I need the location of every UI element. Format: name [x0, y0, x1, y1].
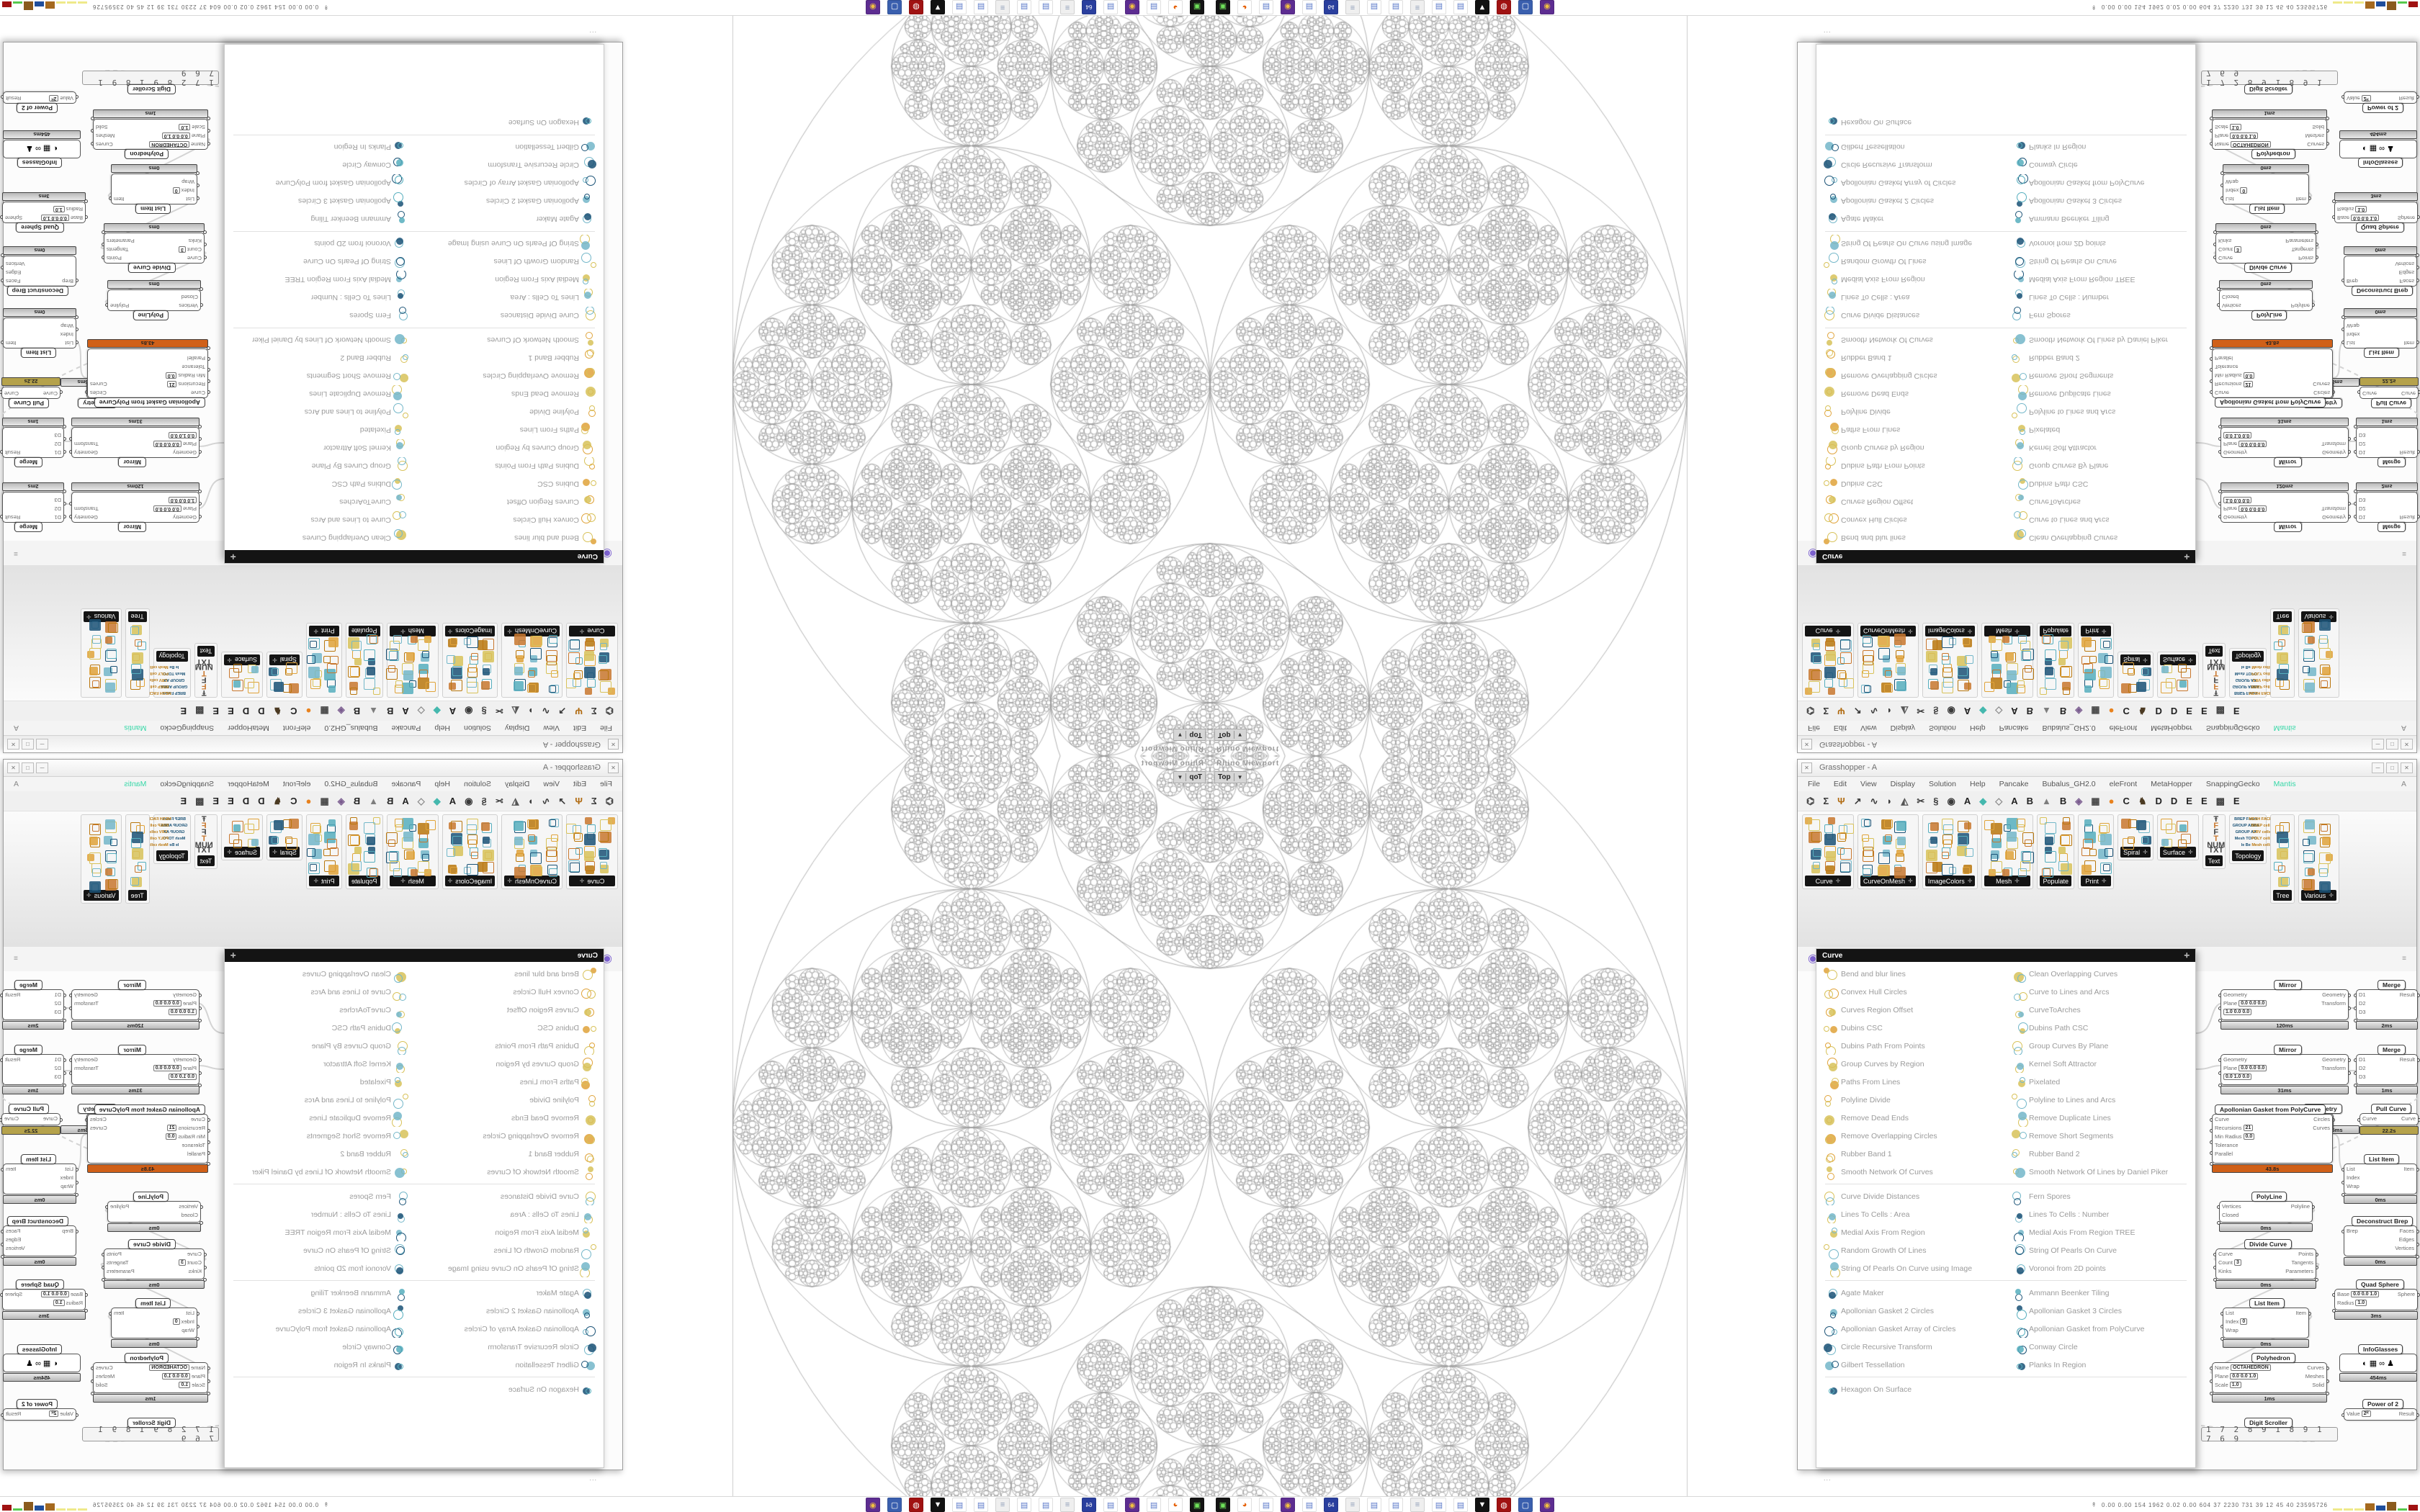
menu-item[interactable]: Rubber Band 1: [414, 1145, 602, 1163]
menu-item[interactable]: Voronoi from 2D points: [2006, 235, 2194, 253]
node-input[interactable]: Plane0.0 0.0 1.0: [162, 133, 205, 140]
taskbar-app-icon-14[interactable]: ▢: [1518, 1498, 1533, 1512]
taskbar-app-icon-13[interactable]: ◍: [909, 1498, 923, 1512]
pin-icon[interactable]: ✛: [2184, 952, 2190, 960]
menu-item[interactable]: Remove Duplicate Lines: [226, 1109, 414, 1127]
menu-item[interactable]: Apollonian Gasket Array of Circles: [1818, 1320, 2006, 1338]
taskbar-app-icon-9[interactable]: ≡: [1410, 0, 1425, 14]
menu-item[interactable]: Fern Spores: [226, 1187, 414, 1205]
taskbar-app-icon-12[interactable]: ▼: [931, 1498, 945, 1512]
node-input[interactable]: Vertices: [179, 1203, 198, 1210]
node-label-chip[interactable]: PolyLine: [133, 310, 169, 320]
gh-node[interactable]: ListItemIndex0Wrap: [111, 1308, 197, 1338]
node-output[interactable]: Polyline: [110, 1203, 129, 1210]
menu-item[interactable]: Lines To Cells : Number: [226, 1205, 414, 1223]
menu-item[interactable]: Remove Dead Ends: [414, 1109, 602, 1127]
node-input[interactable]: Curve: [191, 390, 205, 397]
menu-item[interactable]: Group Curves By Plane: [2006, 1037, 2194, 1055]
menu-item[interactable]: Gilbert Tessellation: [414, 1356, 602, 1374]
node-value-box[interactable]: 0.0 0.0 0.0: [2238, 506, 2267, 513]
node-label-chip[interactable]: Apollonian Gasket from PolyCurve: [94, 397, 205, 408]
taskbar-app-icon-10[interactable]: ▤: [1432, 1498, 1446, 1512]
menu-item[interactable]: Curves Region Offset: [414, 493, 602, 511]
menu-item[interactable]: Pixelated: [226, 421, 414, 439]
menu-item[interactable]: Paths From Lines: [1818, 1073, 2006, 1091]
node-output[interactable]: Faces: [2400, 1228, 2414, 1234]
node-input[interactable]: Curve: [2215, 390, 2229, 397]
menu-item[interactable]: Polyline to Lines and Arcs: [226, 1091, 414, 1109]
node-input[interactable]: Index0: [2226, 188, 2247, 194]
node-output[interactable]: Geometry: [2322, 515, 2346, 521]
gh-node[interactable]: GeometryGeometryPlane0.0 0.0 0.0Transfor…: [2220, 989, 2349, 1020]
menu-item[interactable]: Polyline Divide: [414, 403, 602, 421]
node-input[interactable]: Index: [2347, 1174, 2359, 1181]
node-value-box[interactable]: 2ᴿ: [2362, 96, 2371, 102]
node-output[interactable]: Result: [2399, 1410, 2414, 1417]
node-output[interactable]: Sphere: [2398, 1291, 2415, 1297]
node-input[interactable]: D2: [2359, 506, 2366, 513]
node-input[interactable]: Tolerance: [181, 364, 205, 371]
node-output[interactable]: Curves: [2313, 382, 2330, 388]
taskbar-app-icon-4[interactable]: ▤: [1103, 0, 1118, 14]
menu-item[interactable]: Polyline Divide: [414, 1091, 602, 1109]
menu-item[interactable]: Lines To Cells : Area: [414, 1205, 602, 1223]
node-value-box[interactable]: 0.0 1.0 0.0: [169, 433, 197, 439]
node-input[interactable]: Index: [60, 332, 73, 338]
menu-item[interactable]: String Of Pearls On Curve: [2006, 253, 2194, 271]
taskbar-app-icon-14[interactable]: ▢: [1518, 0, 1533, 14]
node-output[interactable]: Sphere: [2398, 215, 2415, 222]
node-input[interactable]: Index0: [173, 188, 194, 194]
node-value-box[interactable]: 1.0: [179, 125, 191, 131]
node-label-chip[interactable]: Polyhedron: [2251, 1353, 2295, 1363]
gh-node[interactable]: GeometryGeometryPlane0.0 0.0 0.0Transfor…: [71, 989, 200, 1020]
menu-item[interactable]: Kernel Soft Attractor: [226, 439, 414, 457]
menu-item[interactable]: Remove Overlapping Circles: [1818, 1127, 2006, 1145]
menu-item[interactable]: Dubins CSC: [414, 475, 602, 493]
node-output[interactable]: Curves: [2313, 1125, 2330, 1131]
node-input[interactable]: Curve: [43, 391, 58, 397]
node-input[interactable]: List: [2226, 1310, 2234, 1316]
node-input[interactable]: Brep: [62, 279, 73, 285]
pin-icon[interactable]: ✛: [2184, 553, 2190, 561]
gh-node[interactable]: ListItemIndexWrap: [2344, 318, 2417, 348]
node-input[interactable]: Brep: [2347, 1228, 2358, 1234]
taskbar-app-icon-11[interactable]: ▤: [1453, 0, 1468, 14]
menu-item[interactable]: Kernel Soft Attractor: [2006, 1055, 2194, 1073]
node-output[interactable]: Vertices: [6, 261, 25, 268]
node-output[interactable]: Curves: [96, 142, 113, 148]
node-value-box[interactable]: 0.0 1.0 0.0: [2223, 1074, 2251, 1080]
menu-item[interactable]: Fern Spores: [226, 307, 414, 325]
node-output[interactable]: Geometry: [2322, 450, 2346, 456]
node-input[interactable]: Wrap: [60, 323, 73, 330]
node-value-box[interactable]: 3: [179, 247, 186, 253]
menu-item[interactable]: Conway Circle: [2006, 156, 2194, 174]
node-label-chip[interactable]: InfoGlasses: [17, 158, 62, 168]
node-label-chip[interactable]: List Item: [2364, 348, 2399, 358]
menu-item[interactable]: CurveToArches: [2006, 493, 2194, 511]
node-output[interactable]: Polyline: [2291, 1203, 2310, 1210]
menu-item[interactable]: Random Growth Of Lines: [414, 253, 602, 271]
taskbar-app-icon-7[interactable]: ▤: [1367, 1498, 1381, 1512]
node-label-chip[interactable]: Merge: [14, 457, 42, 467]
gh-node[interactable]: Base0.0 0.0 1.0SphereRadius1.0: [2, 1289, 86, 1310]
menu-item[interactable]: Remove Dead Ends: [1818, 385, 2006, 403]
node-output[interactable]: Tangents: [107, 247, 128, 253]
menu-item[interactable]: Apollonian Gasket from PolyCurve: [2006, 1320, 2194, 1338]
node-output[interactable]: Geometry: [74, 450, 98, 456]
node-output[interactable]: Transform: [74, 506, 99, 513]
node-value-box[interactable]: 0: [2240, 1318, 2247, 1325]
node-input[interactable]: Geometry: [2223, 450, 2247, 456]
taskbar-app-icon-3[interactable]: ◉: [1125, 0, 1139, 14]
node-output[interactable]: Edges: [2399, 1236, 2414, 1243]
gh-node[interactable]: ListItemIndex0Wrap: [2223, 1308, 2309, 1338]
menu-item[interactable]: CurveToArches: [226, 493, 414, 511]
menu-item[interactable]: Bend and blur lines: [414, 529, 602, 547]
node-output[interactable]: Tangents: [2292, 247, 2313, 253]
node-input[interactable]: Curve: [2215, 1116, 2229, 1122]
node-input[interactable]: Curve: [187, 1251, 202, 1257]
node-value-box[interactable]: 1.0: [2230, 1382, 2241, 1388]
node-label-chip[interactable]: Mirror: [118, 980, 146, 990]
node-label-chip[interactable]: Polyhedron: [125, 149, 169, 159]
node-value-box[interactable]: 1.0: [179, 1382, 191, 1388]
menu-item[interactable]: Rubber Band 2: [2006, 349, 2194, 367]
node-output[interactable]: Curves: [90, 382, 107, 388]
taskbar-app-icon-6[interactable]: ≡: [1060, 0, 1075, 14]
node-output[interactable]: Result: [2400, 450, 2415, 456]
menu-item[interactable]: Convex Hull Circles: [414, 983, 602, 1001]
menu-item[interactable]: Medial Axis From Region: [1818, 271, 2006, 289]
taskbar-app-icon-11[interactable]: ▤: [1453, 1498, 1468, 1512]
node-input[interactable]: Wrap: [60, 1183, 73, 1189]
menu-item[interactable]: Medial Axis From Region TREE: [226, 271, 414, 289]
rhino-viewport[interactable]: Rhino Viewport Top ▼: [1210, 16, 1688, 756]
node-output[interactable]: Circles: [90, 390, 107, 397]
menu-item[interactable]: Paths From Lines: [414, 1073, 602, 1091]
menu-item[interactable]: Ammann Beenker Tiling: [2006, 210, 2194, 228]
node-output[interactable]: Curve: [2401, 1115, 2416, 1122]
node-input[interactable]: Geometry: [173, 515, 197, 521]
taskbar-app-icon-6[interactable]: ≡: [1345, 1498, 1360, 1512]
menu-item[interactable]: Polyline Divide: [1818, 1091, 2006, 1109]
menu-item[interactable]: Apollonian Gasket 2 Circles: [414, 192, 602, 210]
taskbar-app-icon-1[interactable]: ◕: [1168, 1498, 1183, 1512]
rhino-viewport[interactable]: Rhino Viewport Top ▼: [732, 756, 1210, 1496]
node-label-chip[interactable]: Merge: [2378, 522, 2406, 532]
node-output[interactable]: Solid: [2312, 125, 2324, 131]
menu-item[interactable]: Lines To Cells : Area: [414, 289, 602, 307]
node-label-chip[interactable]: Pull Curve: [2371, 398, 2411, 408]
node-input[interactable]: NameOCTAHEDRON: [2215, 142, 2271, 148]
node-input[interactable]: List: [186, 197, 194, 203]
menu-item[interactable]: Conway Circle: [2006, 1338, 2194, 1356]
node-input[interactable]: Geometry: [173, 1056, 197, 1063]
node-value-box[interactable]: 0.0 1.0 0.0: [169, 1074, 197, 1080]
node-output[interactable]: Edges: [6, 270, 21, 276]
node-label-chip[interactable]: Divide Curve: [128, 1239, 176, 1249]
gh-node[interactable]: CurveCirclesRecursions21CurvesMin Radius…: [2212, 348, 2333, 398]
node-input[interactable]: Wrap: [181, 179, 194, 186]
node-label-chip[interactable]: Merge: [2378, 1045, 2406, 1055]
menu-item[interactable]: Apollonian Gasket 3 Circles: [2006, 192, 2194, 210]
taskbar-app-icon-6[interactable]: ≡: [1345, 0, 1360, 14]
menu-item[interactable]: String Of Pearls On Curve: [226, 1241, 414, 1259]
menu-item[interactable]: Planks In Region: [2006, 1356, 2194, 1374]
menu-item[interactable]: Lines To Cells : Number: [2006, 289, 2194, 307]
node-label-chip[interactable]: Power of 2: [17, 1399, 58, 1409]
node-input[interactable]: Kinks: [189, 1268, 202, 1274]
menu-item[interactable]: Ammann Beenker Tiling: [2006, 1284, 2194, 1302]
gh-node[interactable]: CurveCurve: [2359, 1113, 2419, 1125]
node-label-chip[interactable]: Mirror: [2274, 457, 2302, 467]
node-input[interactable]: Wrap: [181, 1327, 194, 1333]
node-label-chip[interactable]: Mirror: [118, 522, 146, 532]
menu-item[interactable]: Remove Short Segments: [226, 1127, 414, 1145]
node-input[interactable]: D1: [2359, 1056, 2366, 1063]
menu-item[interactable]: Agate Maker: [414, 210, 602, 228]
node-output[interactable]: Points: [2298, 256, 2313, 262]
node-output[interactable]: Faces: [6, 279, 20, 285]
node-input[interactable]: Geometry: [173, 450, 197, 456]
node-label-chip[interactable]: Mirror: [118, 457, 146, 467]
menu-item[interactable]: Dubins Path CSC: [226, 1019, 414, 1037]
node-value-box[interactable]: 21: [2244, 382, 2254, 388]
menu-item[interactable]: Polyline to Lines and Arcs: [226, 403, 414, 421]
menu-item[interactable]: Curve Divide Distances: [1818, 1187, 2006, 1205]
node-output[interactable]: Meshes: [2305, 133, 2324, 140]
node-output[interactable]: Meshes: [96, 1373, 115, 1380]
node-label-chip[interactable]: PolyLine: [2251, 310, 2287, 320]
viewport-top-tab[interactable]: Top ▼: [1214, 729, 1247, 741]
menu-item[interactable]: Planks In Region: [2006, 138, 2194, 156]
node-output[interactable]: Item: [114, 197, 125, 203]
gh-node[interactable]: CurveCurve: [1, 387, 60, 399]
menu-item[interactable]: Smooth Network Of Curves: [414, 1163, 602, 1181]
node-value-box[interactable]: 1.0 0.0 0.0: [2223, 498, 2251, 504]
node-label-chip[interactable]: Mirror: [118, 1045, 146, 1055]
node-input[interactable]: Curve: [187, 256, 202, 262]
node-value-box[interactable]: 21: [167, 1125, 177, 1131]
node-input[interactable]: Geometry: [2223, 991, 2247, 998]
node-value-box[interactable]: 21: [2244, 1125, 2254, 1131]
node-input[interactable]: 1.0 0.0 0.0: [169, 1009, 197, 1015]
node-label-chip[interactable]: Divide Curve: [2244, 1239, 2292, 1249]
menu-item[interactable]: Paths From Lines: [1818, 421, 2006, 439]
menu-item[interactable]: Ammann Beenker Tiling: [226, 1284, 414, 1302]
category-menu-header[interactable]: Curve ✛: [1816, 550, 2195, 563]
taskbar-app-icon-2[interactable]: ▤: [1259, 1498, 1273, 1512]
node-input[interactable]: Curve: [2362, 391, 2377, 397]
menu-item[interactable]: Rubber Band 2: [226, 349, 414, 367]
node-input[interactable]: 0.0 1.0 0.0: [169, 433, 197, 439]
node-value-box[interactable]: 1.0 0.0 0.0: [169, 1009, 197, 1015]
gh-node[interactable]: ◐ ▦ ∞ ♟: [2339, 1354, 2417, 1372]
taskbar-app-icon-8[interactable]: ▤: [1389, 0, 1403, 14]
node-value-box[interactable]: 2ᴿ: [2362, 1410, 2371, 1417]
node-input[interactable]: Radius1.0: [53, 207, 83, 213]
gh-node[interactable]: VerticesPolylineClosed: [107, 289, 201, 311]
node-value-box[interactable]: 0.0 1.0 0.0: [2223, 433, 2251, 439]
node-label-chip[interactable]: Divide Curve: [2244, 263, 2292, 273]
node-input[interactable]: D1: [54, 515, 61, 521]
node-value-box[interactable]: 0.0 0.0 1.0: [41, 1291, 69, 1297]
taskbar-app-icon-12[interactable]: ▼: [931, 0, 945, 14]
taskbar-app-icon-13[interactable]: ◍: [909, 0, 923, 14]
menu-item[interactable]: Circle Recursive Transform: [1818, 1338, 2006, 1356]
node-input[interactable]: Value2ᴿ: [2347, 96, 2371, 102]
node-input[interactable]: Kinks: [2218, 238, 2231, 245]
menu-item[interactable]: Paths From Lines: [414, 421, 602, 439]
node-label-chip[interactable]: Power of 2: [17, 103, 58, 113]
node-output[interactable]: Vertices: [2395, 1245, 2414, 1251]
menu-item[interactable]: Hexagon On Surface: [1818, 114, 2006, 132]
node-label-chip[interactable]: Quad Sphere: [16, 222, 64, 233]
gh-node[interactable]: GeometryGeometryPlane0.0 0.0 0.0Transfor…: [71, 1054, 200, 1085]
menu-item[interactable]: Hexagon On Surface: [414, 1380, 602, 1398]
menu-item[interactable]: Polyline Divide: [1818, 403, 2006, 421]
node-value-box[interactable]: 0.0 0.0 1.0: [2351, 1291, 2379, 1297]
menu-item[interactable]: Remove Duplicate Lines: [2006, 1109, 2194, 1127]
taskbar-app-icon-8[interactable]: ▤: [1017, 1498, 1031, 1512]
menu-item[interactable]: Planks In Region: [226, 1356, 414, 1374]
menu-item[interactable]: Medial Axis From Region TREE: [2006, 271, 2194, 289]
viewport-top-tab[interactable]: Top ▼: [1173, 771, 1206, 783]
node-output[interactable]: Vertices: [6, 1245, 25, 1251]
gh-node[interactable]: CurvePointsCount3TangentsKinksParameters: [104, 233, 205, 264]
node-value-box[interactable]: 0.0 0.0 1.0: [162, 1373, 190, 1380]
gh-node[interactable]: ◐ ▦ ∞ ♟: [2339, 140, 2417, 158]
node-output[interactable]: Parameters: [2285, 238, 2313, 245]
menu-item[interactable]: Random Growth Of Lines: [1818, 253, 2006, 271]
taskbar-app-icon-0[interactable]: ▣: [1216, 1498, 1230, 1512]
gh-node[interactable]: D1ResultD2D3: [2, 1054, 64, 1085]
menu-item[interactable]: Smooth Network Of Lines by Daniel Piker: [226, 331, 414, 349]
node-input[interactable]: Radius1.0: [2337, 207, 2367, 213]
menu-item[interactable]: Smooth Network Of Curves: [414, 331, 602, 349]
menu-item[interactable]: Rubber Band 1: [1818, 349, 2006, 367]
node-input[interactable]: Min Radius0.0: [166, 1133, 205, 1140]
taskbar-app-icon-2[interactable]: ▤: [1259, 0, 1273, 14]
node-output[interactable]: Curves: [90, 1125, 107, 1131]
taskbar-app-icon-14[interactable]: ▢: [887, 0, 902, 14]
menu-item[interactable]: Clean Overlapping Curves: [2006, 529, 2194, 547]
node-value-box[interactable]: 0.0 0.0 0.0: [153, 506, 181, 513]
node-input[interactable]: Plane0.0 0.0 1.0: [162, 1373, 205, 1380]
gh-node[interactable]: Value2ᴿResult: [2344, 91, 2417, 104]
taskbar-app-icon-1[interactable]: ◕: [1237, 0, 1252, 14]
node-output[interactable]: Item: [6, 1166, 17, 1172]
gh-node[interactable]: VerticesPolylineClosed: [2219, 1201, 2313, 1223]
node-value-box[interactable]: 1.0: [2355, 1300, 2367, 1306]
node-value-box[interactable]: 2ᴿ: [49, 1410, 58, 1417]
node-label-chip[interactable]: Digit Scroller: [2244, 84, 2293, 94]
taskbar-app-icon-4[interactable]: ▤: [1103, 1498, 1118, 1512]
node-label-chip[interactable]: Polyhedron: [125, 1353, 169, 1363]
node-label-chip[interactable]: Quad Sphere: [2356, 1279, 2404, 1290]
gh-node[interactable]: CurveCirclesRecursions21CurvesMin Radius…: [2212, 1114, 2333, 1164]
node-value-box[interactable]: 0.0 0.0 0.0: [153, 441, 181, 448]
node-label-chip[interactable]: Apollonian Gasket from PolyCurve: [94, 1104, 205, 1115]
node-output[interactable]: Item: [2295, 1310, 2306, 1316]
menu-item[interactable]: Curves Region Offset: [414, 1001, 602, 1019]
node-output[interactable]: Item: [2403, 341, 2414, 347]
node-input[interactable]: Vertices: [2222, 303, 2241, 310]
node-input[interactable]: D2: [2359, 441, 2366, 448]
node-input[interactable]: D2: [54, 1065, 61, 1071]
node-input[interactable]: Curve: [2362, 1115, 2377, 1122]
node-input[interactable]: 0.0 1.0 0.0: [169, 1074, 197, 1080]
gh-node[interactable]: NameOCTAHEDRONCurvesPlane0.0 0.0 1.0Mesh…: [2212, 1362, 2327, 1393]
node-output[interactable]: Circles: [90, 1116, 107, 1122]
node-input[interactable]: List: [2347, 1166, 2355, 1172]
node-input[interactable]: Scale1.0: [2215, 1382, 2241, 1388]
menu-item[interactable]: Medial Axis From Region: [414, 1223, 602, 1241]
gh-node[interactable]: BrepFacesEdgesVertices: [3, 256, 76, 287]
node-label-chip[interactable]: Mirror: [2274, 522, 2302, 532]
node-input[interactable]: Parallel: [2215, 356, 2233, 362]
node-input[interactable]: D2: [54, 441, 61, 448]
node-label-chip[interactable]: Quad Sphere: [2356, 222, 2404, 233]
node-input[interactable]: Min Radius0.0: [166, 373, 205, 379]
node-input[interactable]: Radius1.0: [53, 1300, 83, 1306]
node-input[interactable]: 0.0 1.0 0.0: [2223, 1074, 2251, 1080]
node-input[interactable]: Index0: [2226, 1318, 2247, 1325]
node-input[interactable]: Plane0.0 0.0 0.0: [2223, 1000, 2267, 1007]
gh-node[interactable]: D1ResultD2D3: [2356, 492, 2418, 523]
gh-node[interactable]: Value2ᴿResult: [3, 91, 76, 104]
node-input[interactable]: Curve: [2218, 1251, 2233, 1257]
menu-item[interactable]: Remove Overlapping Circles: [414, 1127, 602, 1145]
menu-item[interactable]: CurveToArches: [2006, 1001, 2194, 1019]
node-value-box[interactable]: 0: [173, 1318, 180, 1325]
menu-item[interactable]: Convex Hull Circles: [1818, 511, 2006, 529]
node-input[interactable]: D2: [54, 506, 61, 513]
node-label-chip[interactable]: Merge: [14, 522, 42, 532]
node-label-chip[interactable]: List Item: [21, 348, 56, 358]
node-input[interactable]: Plane0.0 0.0 1.0: [2215, 133, 2258, 140]
node-output[interactable]: Result: [5, 515, 20, 521]
gh-node[interactable]: CurveCurve: [1, 1113, 60, 1125]
menu-item[interactable]: Bend and blur lines: [1818, 529, 2006, 547]
menu-item[interactable]: Gilbert Tessellation: [1818, 138, 2006, 156]
node-label-chip[interactable]: Divide Curve: [128, 263, 176, 273]
node-input[interactable]: Geometry: [173, 991, 197, 998]
node-output[interactable]: Circles: [2313, 1116, 2330, 1122]
node-value-box[interactable]: 0: [2240, 188, 2247, 194]
node-input[interactable]: Brep: [62, 1228, 73, 1234]
gh-node[interactable]: ListItemIndexWrap: [3, 1164, 76, 1194]
node-input[interactable]: D1: [54, 991, 61, 998]
menu-item[interactable]: Clean Overlapping Curves: [2006, 965, 2194, 983]
node-input[interactable]: D1: [2359, 450, 2366, 456]
gh-node[interactable]: ListItemIndex0Wrap: [2223, 174, 2309, 204]
menu-item[interactable]: Lines To Cells : Number: [226, 289, 414, 307]
node-input[interactable]: Count3: [179, 1259, 202, 1266]
gh-node[interactable]: D1ResultD2D3: [2, 427, 64, 458]
node-output[interactable]: Geometry: [2322, 991, 2346, 998]
menu-item[interactable]: Smooth Network Of Lines by Daniel Piker: [2006, 331, 2194, 349]
node-output[interactable]: Points: [107, 256, 122, 262]
node-value-box[interactable]: 0.0 0.0 1.0: [162, 133, 190, 140]
node-input[interactable]: 0.0 1.0 0.0: [2223, 433, 2251, 439]
node-output[interactable]: Result: [2400, 991, 2415, 998]
taskbar-app-icon-8[interactable]: ▤: [1017, 0, 1031, 14]
gh-node[interactable]: CurveCurve: [2359, 387, 2419, 399]
menu-item[interactable]: Planks In Region: [226, 138, 414, 156]
